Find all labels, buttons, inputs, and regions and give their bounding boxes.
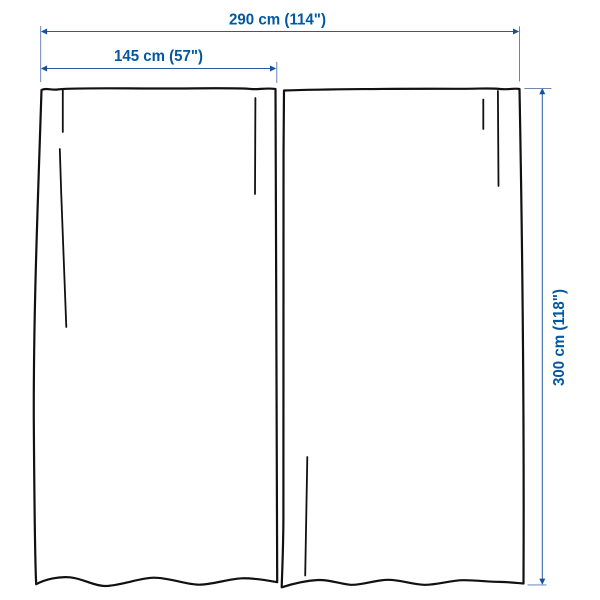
svg-text:300 cm (118"): 300 cm (118") [551, 289, 568, 386]
svg-text:145 cm (57"): 145 cm (57") [114, 48, 203, 65]
svg-text:290 cm (114"): 290 cm (114") [229, 12, 326, 29]
